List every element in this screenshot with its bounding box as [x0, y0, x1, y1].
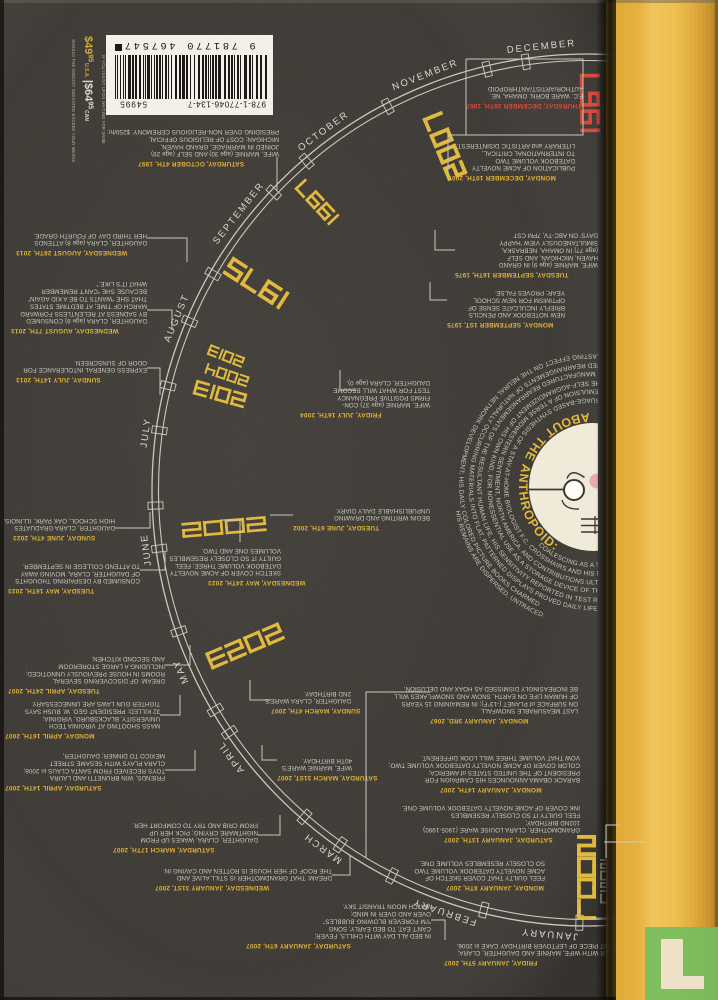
svg-text:AUTHOR/ARTIST/ANTHROPOID: AUTHOR/ARTIST/ANTHROPOID	[487, 85, 583, 92]
svg-text:WHAT IT'S LIKE.”: WHAT IT'S LIKE.”	[96, 280, 147, 287]
svg-text:TUESDAY, JUNE 6TH, 2002: TUESDAY, JUNE 6TH, 2002	[293, 524, 379, 531]
svg-text:FRIDAY, JANUARY 5TH, 2007: FRIDAY, JANUARY 5TH, 2007	[444, 959, 537, 966]
svg-text:GRANDMOTHER, CLARA LOUISE WARE: GRANDMOTHER, CLARA LOUISE WARE (1905-199…	[423, 826, 580, 833]
svg-text:VOW THAT VOLUME THREE WILL LOO: VOW THAT VOLUME THREE WILL LOOK DIFFEREN…	[421, 754, 580, 761]
svg-text:THAT SHE “WANTS TO BE A KID AG: THAT SHE “WANTS TO BE A KID AGAIN”	[28, 295, 147, 302]
svg-text:FIRMS POSITIVE PREGNANCY: FIRMS POSITIVE PREGNANCY	[337, 394, 430, 401]
svg-text:32 KILLED; PRESIDENT GEO. W. B: 32 KILLED; PRESIDENT GEO. W. BUSH SAYS	[25, 707, 160, 714]
svg-text:MONDAY, DECEMBER 10TH, 2007: MONDAY, DECEMBER 10TH, 2007	[448, 174, 556, 181]
svg-text:BEGIN WRITING AND DRAWING: BEGIN WRITING AND DRAWING	[334, 514, 430, 521]
svg-text:DAUGHTER, CLARA WARE'S: DAUGHTER, CLARA WARE'S	[265, 697, 351, 704]
svg-text:ODOR OF SUNSCREEN.: ODOR OF SUNSCREEN.	[74, 359, 147, 366]
svg-text:BARACK OBAMA ANNOUNCES HIS CAM: BARACK OBAMA ANNOUNCES HIS CAMPAIGN FOR	[425, 776, 580, 783]
svg-text:INK COVER OF ACME NOVELTY DATE: INK COVER OF ACME NOVELTY DATEBOOK VOLUM…	[401, 804, 580, 811]
svg-text:TUESDAY, SEPTEMBER 16TH, 1975: TUESDAY, SEPTEMBER 16TH, 1975	[455, 271, 569, 278]
svg-text:MONDAY, JANUARY 14TH, 2007: MONDAY, JANUARY 14TH, 2007	[440, 786, 542, 793]
svg-text:TO INTERNATIONAL CRITICAL,: TO INTERNATIONAL CRITICAL,	[482, 149, 575, 156]
svg-text:DREAM: OF DISCOVERING SEVERAL: DREAM: OF DISCOVERING SEVERAL	[52, 677, 165, 684]
svg-text:MARCH OF TIME; AT BEDTIME STAT: MARCH OF TIME; AT BEDTIME STATES	[30, 302, 147, 309]
svg-text:FRIDAY, JULY 16TH, 2004: FRIDAY, JULY 16TH, 2004	[300, 411, 382, 418]
svg-text:WEDNESDAY, AUGUST 7TH, 2013: WEDNESDAY, AUGUST 7TH, 2013	[11, 327, 119, 334]
svg-text:LAST MEASURABLE SNOWFALL: LAST MEASURABLE SNOWFALL	[480, 707, 578, 714]
svg-text:TUESDAY, MAY 16TH, 2023: TUESDAY, MAY 16TH, 2023	[8, 587, 94, 594]
svg-text:DAUGHTER, CLARA (age 8) ATTEND: DAUGHTER, CLARA (age 8) ATTENDS	[34, 239, 147, 246]
svg-text:VOLUMES ONE AND TWO.: VOLUMES ONE AND TWO.	[201, 547, 281, 554]
svg-text:SATURDAY, MARCH 17TH, 2007: SATURDAY, MARCH 17TH, 2007	[113, 846, 215, 853]
svg-text:DATEBOOK VOLUME TWO: DATEBOOK VOLUME TWO	[495, 157, 575, 164]
svg-text:WATCH MOON TRANSIT SKY.: WATCH MOON TRANSIT SKY.	[343, 903, 431, 910]
svg-text:DAYS' ON ABC-TV, 7PM CST: DAYS' ON ABC-TV, 7PM CST	[513, 232, 598, 239]
svg-text:BRIEFLY INCULCATE SENSE OF: BRIEFLY INCULCATE SENSE OF	[468, 304, 565, 311]
svg-text:IF YOU INSIST UPON WAITING FOR: IF YOU INSIST UPON WAITING FOR SAME	[101, 55, 106, 144]
svg-text:SATURDAY, OCTOBER 4TH, 1997: SATURDAY, OCTOBER 4TH, 1997	[138, 160, 244, 167]
svg-text:MICHIGAN; COST OF RELIGIOUS OF: MICHIGAN; COST OF RELIGIOUS OFFICIAL	[148, 135, 279, 142]
svg-text:SATURDAY, APRIL 14TH, 2007: SATURDAY, APRIL 14TH, 2007	[5, 784, 102, 791]
svg-text:GUILTY IT SO CLOSELY RESEMBLES: GUILTY IT SO CLOSELY RESEMBLES	[169, 554, 281, 561]
svg-text:HIGH SCHOOL, OAK PARK, ILLINOI: HIGH SCHOOL, OAK PARK, ILLINOIS.	[3, 517, 115, 524]
svg-text:SIMULTANEOUSLY VIEW 'HAPPY: SIMULTANEOUSLY VIEW 'HAPPY	[499, 239, 598, 246]
svg-text:MONDAY, SEPTEMBER 1ST, 1975: MONDAY, SEPTEMBER 1ST, 1975	[447, 321, 554, 328]
svg-text:PUBLICATION OF ACME NOVELTY: PUBLICATION OF ACME NOVELTY	[472, 164, 575, 171]
svg-text:AND SECOND KITCHEN.: AND SECOND KITCHEN.	[91, 655, 165, 662]
svg-text:FEEL GUILTY THAT COVER SKETCH: FEEL GUILTY THAT COVER SKETCH OF	[425, 874, 545, 881]
svg-text:OVER AND OVER IN MIND;: OVER AND OVER IN MIND;	[350, 910, 431, 917]
svg-text:SATURDAY, JANUARY 6TH, 2007: SATURDAY, JANUARY 6TH, 2007	[246, 942, 351, 949]
svg-text:NIGHTMARE CRYING; PICK HER UP: NIGHTMARE CRYING; PICK HER UP	[149, 829, 258, 836]
svg-text:DAUGHTER, CLARA GRADUATES: DAUGHTER, CLARA GRADUATES	[14, 524, 115, 531]
svg-text:54995: 54995	[119, 100, 147, 109]
svg-text:THURSDAY, DECEMBER 28TH, 1967: THURSDAY, DECEMBER 28TH, 1967	[466, 102, 582, 109]
svg-text:SHOULD THE AMOUNT INDICATED EX: SHOULD THE AMOUNT INDICATED EXCEED YOUR …	[71, 39, 76, 162]
svg-text:PRESIDENT OF THE UNITED STATES: PRESIDENT OF THE UNITED STATES of AMERIC…	[428, 769, 580, 776]
svg-text:SUNDAY, MARCH 4TH, 2007: SUNDAY, MARCH 4TH, 2007	[271, 707, 360, 714]
svg-text:DAUGHTER, CLARA, WAKES UP FROM: DAUGHTER, CLARA, WAKES UP FROM	[141, 836, 258, 843]
svg-text:SUNDAY, JUNE 4TH, 2023: SUNDAY, JUNE 4TH, 2023	[13, 534, 96, 541]
svg-text:TOYS RECEIVED FROM SANTA CLAUS: TOYS RECEIVED FROM SANTA CLAUS in 2006;	[23, 767, 165, 774]
svg-text:BECAUSE SHE “CAN'T REMEMBER: BECAUSE SHE “CAN'T REMEMBER	[41, 288, 147, 295]
svg-text:COLOR COVER OF ACME NOVELTY DA: COLOR COVER OF ACME NOVELTY DATEBOOK VOL…	[388, 761, 580, 768]
svg-text:2ND BIRTHDAY.: 2ND BIRTHDAY.	[304, 690, 351, 697]
svg-text:SO CLOSELY RESEMBLES VOLUME ON: SO CLOSELY RESEMBLES VOLUME ONE.	[419, 859, 545, 866]
svg-text:WEDNESDAY, AUGUST 28TH, 2013: WEDNESDAY, AUGUST 28TH, 2013	[16, 249, 128, 256]
svg-text:ACME NOVELTY DATEBOOK VOLUME T: ACME NOVELTY DATEBOOK VOLUME TWO	[414, 867, 545, 874]
svg-text:FRIENDS, WIN BRUNETTI AND LAUR: FRIENDS, WIN BRUNETTI AND LAURA	[49, 774, 165, 781]
svg-text:(age 7?) IN OMAHA, NEBRASKA,: (age 7?) IN OMAHA, NEBRASKA,	[501, 246, 598, 253]
svg-text:WIFE, MARNIE (age 30) AND SELF: WIFE, MARNIE (age 30) AND SELF (age 29)	[151, 150, 279, 157]
svg-text:9 781770 467547: 9 781770 467547	[122, 39, 256, 51]
svg-text:BE INCREASINGLY DISMISSED AS H: BE INCREASINGLY DISMISSED AS HOAX AND DE…	[403, 685, 578, 692]
svg-text:TIGHTER GUN LAWS ARE UNNECESSA: TIGHTER GUN LAWS ARE UNNECESSARY.	[31, 700, 160, 707]
svg-text:102ND BIRTHDAY;: 102ND BIRTHDAY;	[525, 819, 580, 826]
svg-text:CLARA PLAYS WITH SESAME STREET: CLARA PLAYS WITH SESAME STREET	[49, 759, 165, 766]
svg-text:WIFE, MARNIE WARE'S: WIFE, MARNIE WARE'S	[282, 764, 352, 771]
svg-text:40TH BIRTHDAY.: 40TH BIRTHDAY.	[302, 757, 352, 764]
svg-text:NEW NOTEBOOK AND PENCILS: NEW NOTEBOOK AND PENCILS	[469, 311, 565, 318]
svg-text:THE ROOF OF HER HOUSE IS ROTTE: THE ROOF OF HER HOUSE IS ROTTEN AND CAVI…	[163, 867, 332, 874]
svg-text:SUNDAY, JULY 14TH, 2013: SUNDAY, JULY 14TH, 2013	[16, 376, 101, 383]
svg-text:OF DAUGHTER, CLARA, MOVING AWA: OF DAUGHTER, CLARA, MOVING AWAY	[21, 570, 140, 577]
svg-text:F.C. WARE BORN, OMAHA, NE.: F.C. WARE BORN, OMAHA, NE.	[490, 92, 583, 99]
svg-text:WEDNESDAY, MAY 24TH, 2023: WEDNESDAY, MAY 24TH, 2023	[208, 579, 306, 586]
svg-text:CAN'T EAT; TO BED EARLY; SONG: CAN'T EAT; TO BED EARLY; SONG	[328, 925, 431, 932]
svg-text:TO ATTEND COLLEGE IN SEPTEMBER: TO ATTEND COLLEGE IN SEPTEMBER.	[22, 562, 140, 569]
svg-text:ROOMS IN HOUSE PREVIOUSLY UNNO: ROOMS IN HOUSE PREVIOUSLY UNNOTICED,	[25, 670, 165, 677]
svg-text:PRESIDING OVER NON-RELIGIOUS C: PRESIDING OVER NON-RELIGIOUS CEREMONY: $…	[107, 128, 279, 135]
svg-text:BY SADNESS AT RELENTLESS FORWA: BY SADNESS AT RELENTLESS FORWARD	[20, 310, 147, 317]
svg-text:ON SURFACE of PLANET (-13°F);: ON SURFACE of PLANET (-13°F); IN REMAINI…	[401, 700, 578, 707]
svg-text:OPTIMISM FOR NEW SCHOOL: OPTIMISM FOR NEW SCHOOL	[473, 296, 565, 303]
svg-text:HER THIRD DAY OF FOURTH GRADE.: HER THIRD DAY OF FOURTH GRADE.	[33, 232, 147, 239]
svg-text:FROM CRIB AND TRY TO COMFORT H: FROM CRIB AND TRY TO COMFORT HER.	[132, 821, 258, 828]
svg-text:EXPRESS GENERAL INTOLERANCE FO: EXPRESS GENERAL INTOLERANCE FOR	[23, 366, 147, 373]
svg-text:MONDAY, JANUARY 8TH, 2007: MONDAY, JANUARY 8TH, 2007	[446, 884, 544, 891]
svg-text:MONDAY, APRIL 16TH, 2007: MONDAY, APRIL 16TH, 2007	[5, 732, 95, 739]
svg-text:MONDAY, JANUARY 3RD, 2067: MONDAY, JANUARY 3RD, 2067	[430, 717, 529, 724]
svg-text:YEAR; PROVES FALSE.: YEAR; PROVES FALSE.	[494, 289, 565, 296]
svg-text:IN BED ALL DAY WITH CHILLS, FE: IN BED ALL DAY WITH CHILLS, FEVER;	[314, 932, 431, 939]
svg-text:UNPUBLISHABLE DAILY DIARY.: UNPUBLISHABLE DAILY DIARY.	[336, 507, 430, 514]
svg-text:OF HUMAN LIFE ON EARTH, SNOW A: OF HUMAN LIFE ON EARTH, SNOW AND SNOWFLA…	[393, 692, 578, 699]
svg-text:WEDNESDAY, JANUARY 31ST, 2007: WEDNESDAY, JANUARY 31ST, 2007	[155, 884, 269, 891]
svg-text:“I'M FOREVER BLOWING BUBBLES”: “I'M FOREVER BLOWING BUBBLES”	[323, 917, 431, 924]
svg-text:INCLUDING A LARGE STOREROOM: INCLUDING A LARGE STOREROOM	[58, 662, 165, 669]
svg-text:DAUGHTER, CLARA (age 8) CONSUM: DAUGHTER, CLARA (age 8) CONSUMED	[26, 317, 147, 324]
svg-text:WIFE, MARNIE (age 9) IN GRAND: WIFE, MARNIE (age 9) IN GRAND	[498, 261, 598, 268]
svg-text:UNIVERSITY, BLACKSBURG, VIRGIN: UNIVERSITY, BLACKSBURG, VIRGINIA;	[42, 715, 160, 722]
svg-text:DATEBOOK VOLUME THREE; FEEL: DATEBOOK VOLUME THREE; FEEL	[175, 562, 281, 569]
svg-text:FEEL GUILTY IT SO CLOSELY RESE: FEEL GUILTY IT SO CLOSELY RESEMBLES	[451, 811, 580, 818]
svg-text:DAUGHTER, CLARA (age 0).: DAUGHTER, CLARA (age 0).	[346, 379, 430, 386]
svg-text:SATURDAY, MARCH 31ST, 2007: SATURDAY, MARCH 31ST, 2007	[277, 774, 378, 781]
svg-text:HAVEN, MICHIGAN, AND SELF: HAVEN, MICHIGAN, AND SELF	[507, 254, 598, 261]
svg-text:TUESDAY, APRIL 24TH, 2007: TUESDAY, APRIL 24TH, 2007	[8, 687, 100, 694]
svg-text:MEXICO TO DINNER; DAUGHTER,: MEXICO TO DINNER; DAUGHTER,	[62, 752, 165, 759]
svg-text:LITERARY and ARTISTIC DISINTER: LITERARY and ARTISTIC DISINTEREST.	[456, 142, 575, 149]
svg-text:CONSUMED BY DESPAIRING THOUGHT: CONSUMED BY DESPAIRING THOUGHTS	[15, 577, 140, 584]
svg-text:978-1-77046-134-7: 978-1-77046-134-7	[187, 100, 266, 109]
svg-text:SKETCH COVER OF ACME NOVELTY: SKETCH COVER OF ACME NOVELTY	[170, 569, 281, 576]
svg-text:DREAM: THAT GRANDMOTHER IS STI: DREAM: THAT GRANDMOTHER IS STILL ALIVE A…	[176, 874, 332, 881]
svg-text:WIFE, MARNIE (age 37) CON-: WIFE, MARNIE (age 37) CON-	[342, 401, 430, 408]
svg-text:SATURDAY, JANUARY 13TH, 2007: SATURDAY, JANUARY 13TH, 2007	[444, 836, 553, 843]
svg-text:JOINED IN MARRIAGE, GRAND HAVE: JOINED IN MARRIAGE, GRAND HAVEN,	[160, 143, 279, 150]
svg-text:MASS SHOOTING AT VIRGINIA TECH: MASS SHOOTING AT VIRGINIA TECH	[49, 722, 160, 729]
